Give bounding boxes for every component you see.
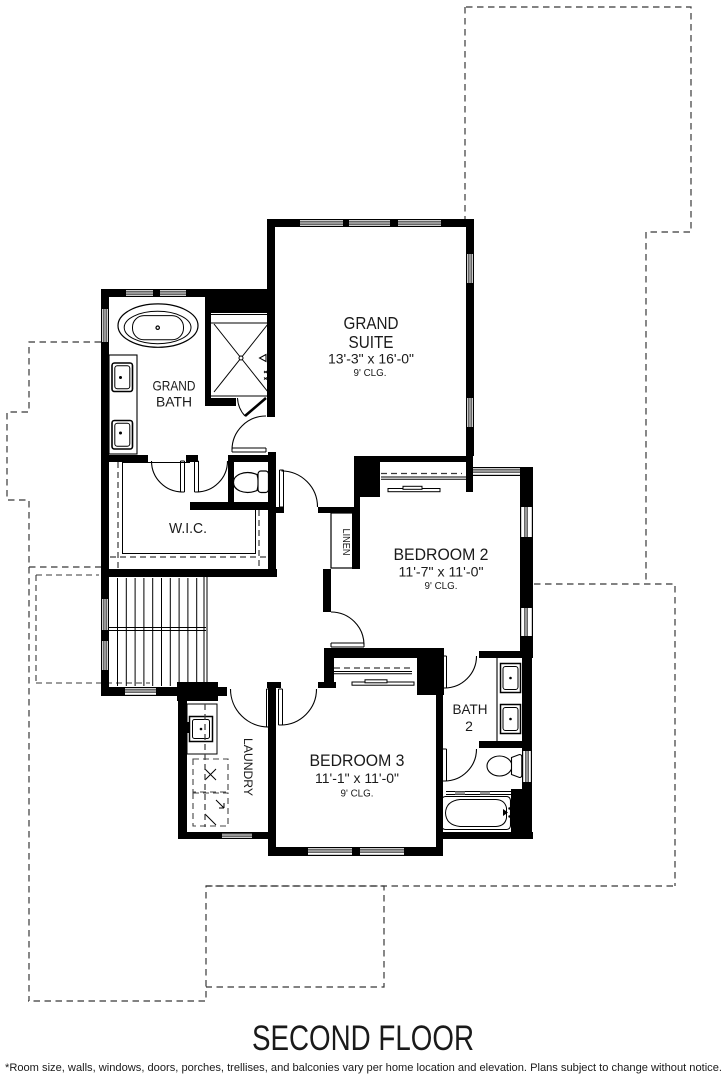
svg-text:SUITE: SUITE — [349, 332, 394, 352]
svg-text:9' CLG.: 9' CLG. — [425, 581, 458, 592]
svg-text:11'-1" x 11'-0": 11'-1" x 11'-0" — [315, 771, 399, 786]
svg-text:BEDROOM 2: BEDROOM 2 — [394, 546, 489, 564]
svg-text:GRAND: GRAND — [153, 379, 196, 394]
svg-text:GRAND: GRAND — [344, 313, 399, 333]
svg-text:SECOND FLOOR: SECOND FLOOR — [252, 1019, 474, 1058]
svg-text:9' CLG.: 9' CLG. — [341, 789, 374, 800]
svg-text:BEDROOM 3: BEDROOM 3 — [310, 752, 405, 770]
svg-text:13'-3" x 16'-0": 13'-3" x 16'-0" — [328, 351, 414, 367]
svg-text:2: 2 — [465, 718, 473, 734]
svg-text:LAUNDRY: LAUNDRY — [241, 738, 255, 796]
svg-text:9' CLG.: 9' CLG. — [354, 368, 387, 379]
svg-text:W.I.C.: W.I.C. — [169, 521, 207, 537]
svg-text:BATH: BATH — [453, 701, 488, 717]
svg-text:11'-7" x 11'-0": 11'-7" x 11'-0" — [399, 565, 484, 580]
svg-text:BATH: BATH — [156, 395, 192, 410]
svg-text:LINEN: LINEN — [340, 529, 351, 556]
svg-text:*Room size, walls, windows, do: *Room size, walls, windows, doors, porch… — [5, 1062, 722, 1074]
